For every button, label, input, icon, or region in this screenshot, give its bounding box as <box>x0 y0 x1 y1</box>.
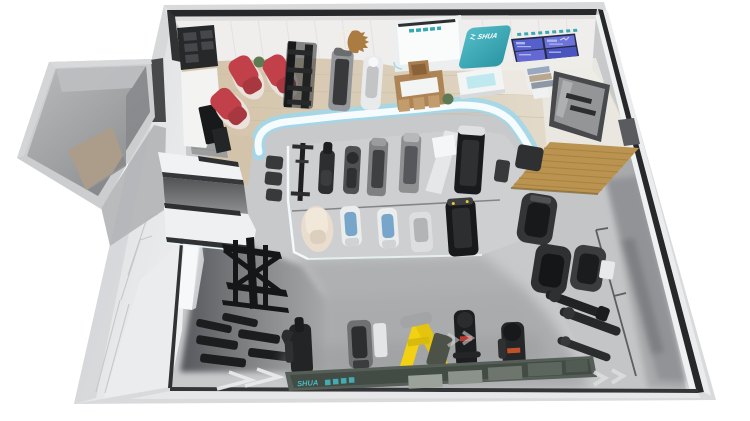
svg-text:SHUA: SHUA <box>297 378 319 388</box>
svg-text:SHUA: SHUA <box>477 32 499 41</box>
